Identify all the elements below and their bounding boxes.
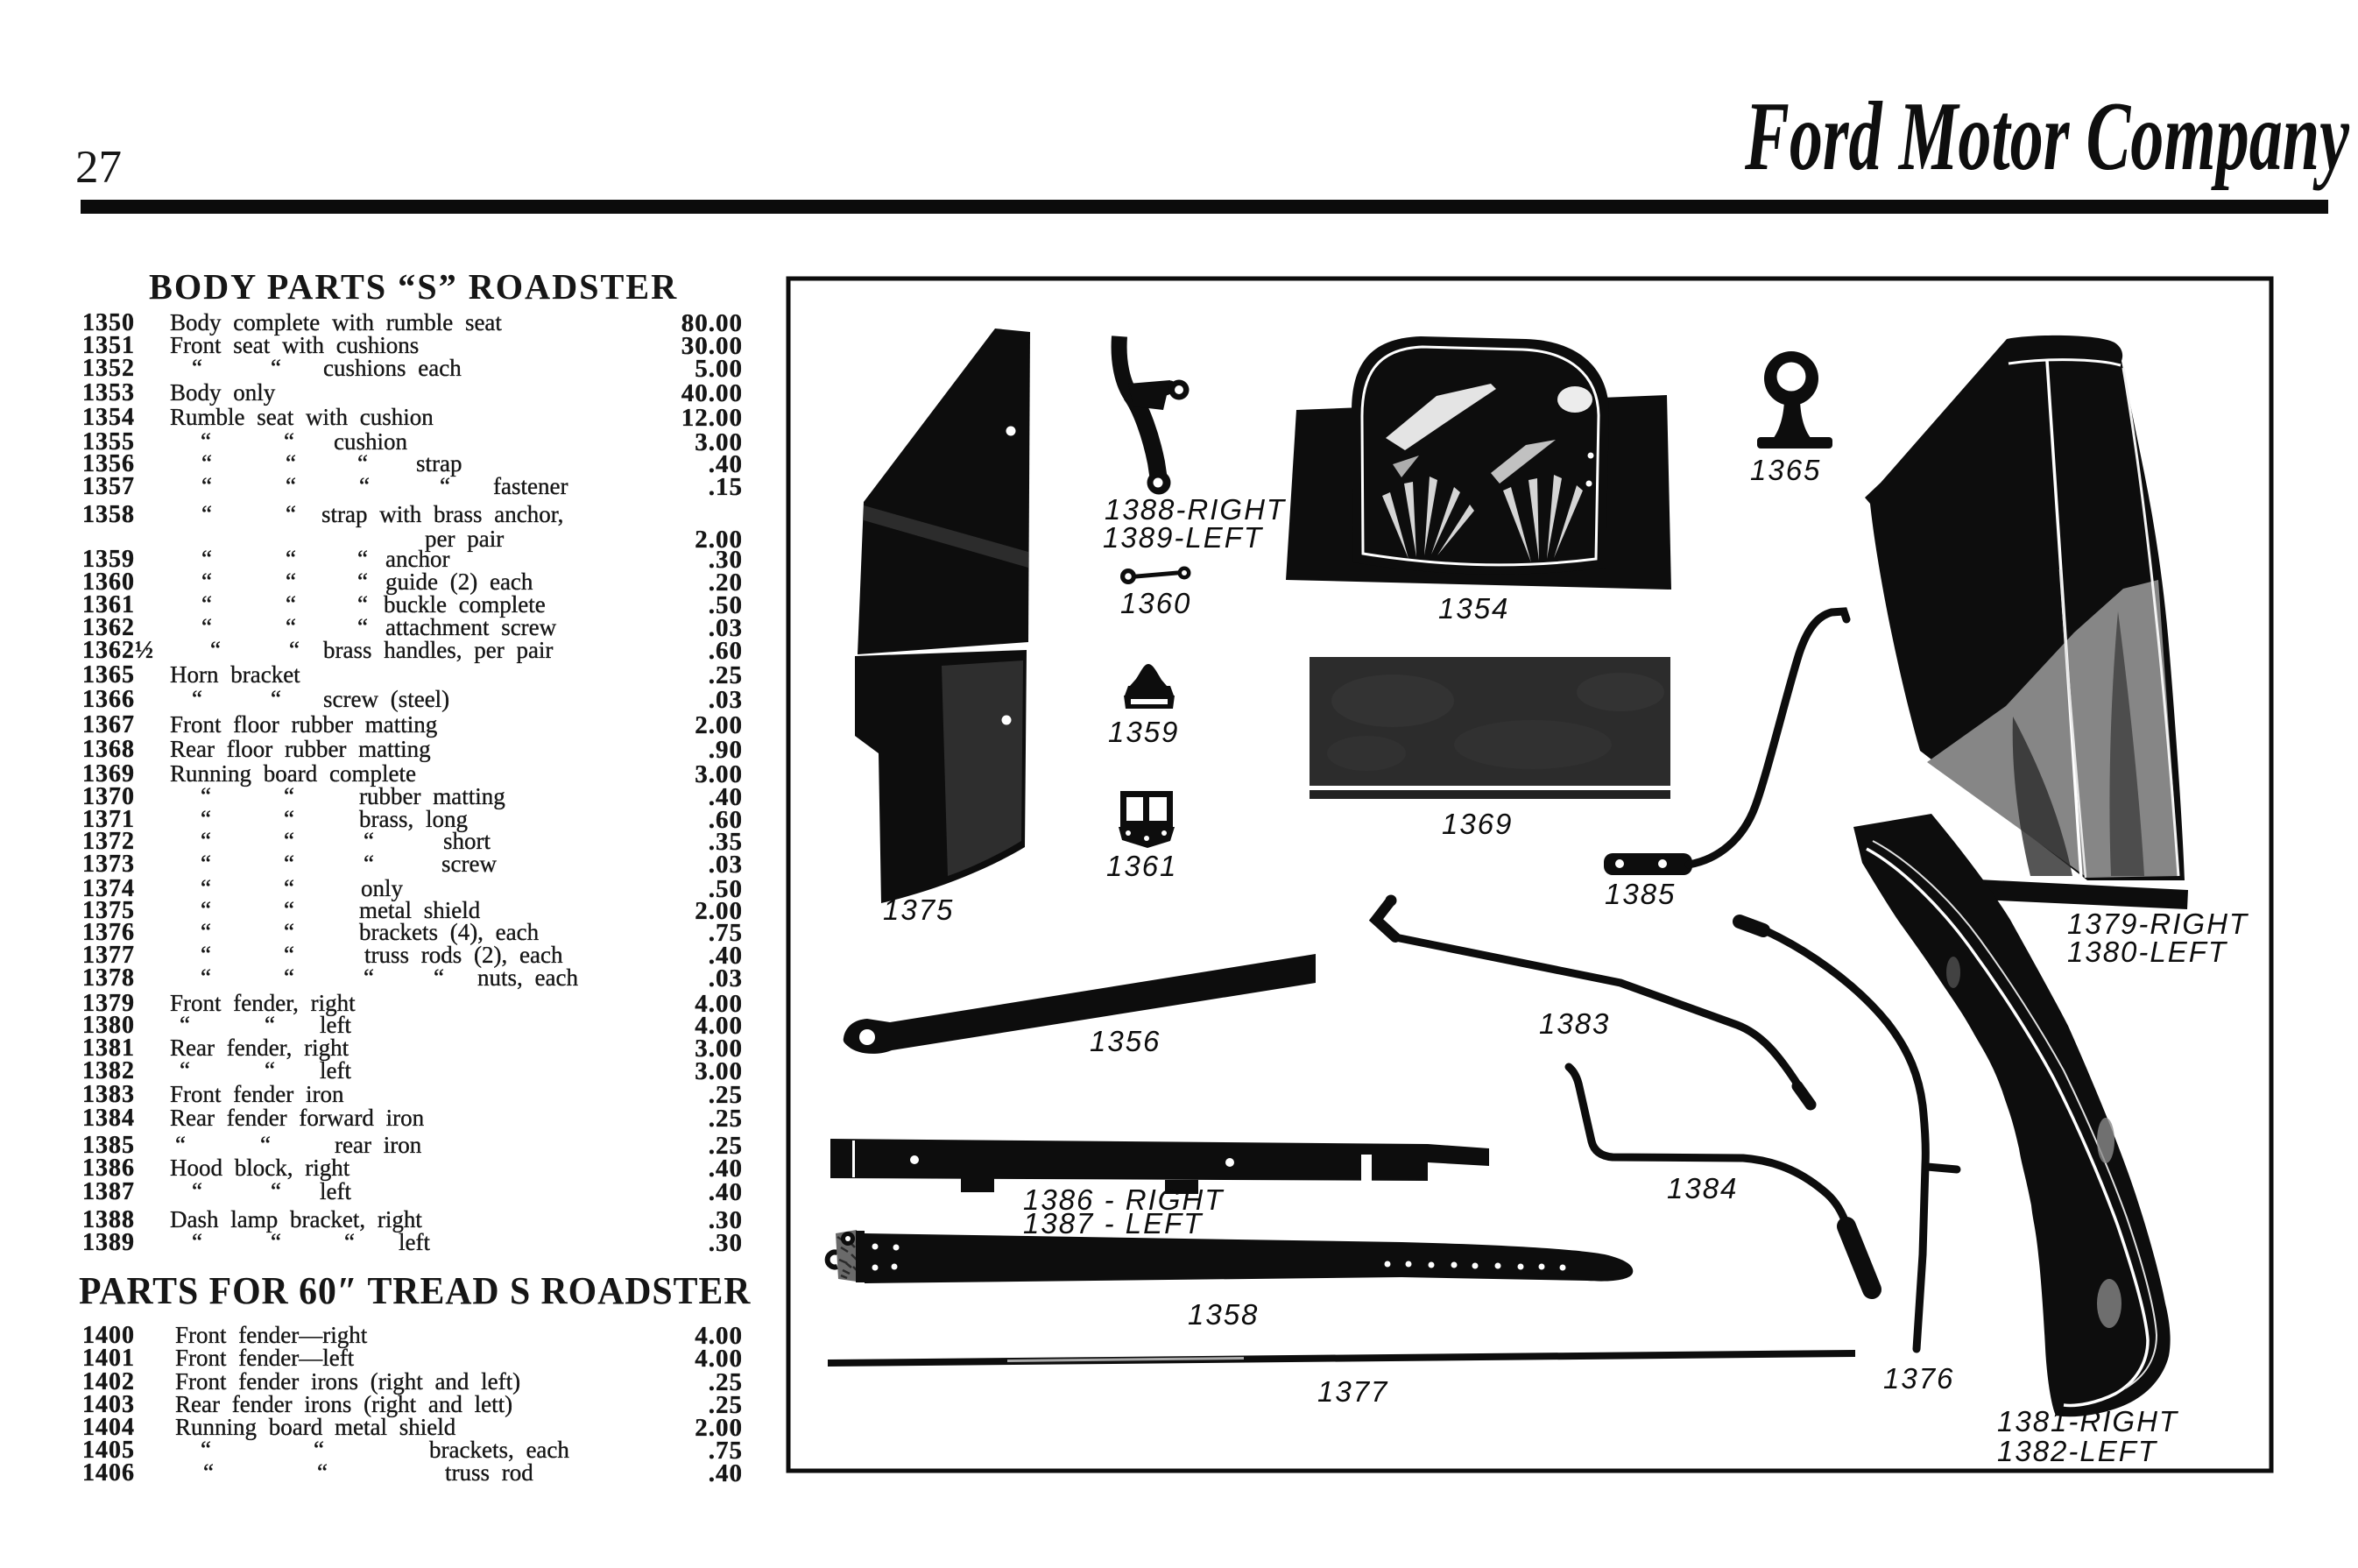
svg-text:1376: 1376 — [1883, 1362, 1954, 1395]
svg-text:1375: 1375 — [883, 893, 954, 926]
svg-text:1360: 1360 — [1120, 587, 1191, 619]
svg-text:1377: 1377 — [1317, 1375, 1388, 1408]
svg-text:1354: 1354 — [1438, 592, 1509, 625]
svg-text:1380-LEFT: 1380-LEFT — [2067, 936, 2228, 968]
svg-text:1383: 1383 — [1539, 1007, 1610, 1040]
svg-text:1356: 1356 — [1090, 1025, 1161, 1057]
svg-text:1369: 1369 — [1442, 808, 1513, 840]
svg-text:1384: 1384 — [1667, 1172, 1738, 1204]
svg-text:1381-RIGHT: 1381-RIGHT — [1997, 1405, 2179, 1437]
svg-text:Ford Motor Company: Ford Motor Company — [1744, 82, 2350, 191]
svg-text:1358: 1358 — [1188, 1298, 1259, 1331]
svg-text:1382-LEFT: 1382-LEFT — [1997, 1435, 2158, 1467]
svg-text:1361: 1361 — [1106, 850, 1177, 882]
svg-text:1385: 1385 — [1605, 878, 1676, 910]
svg-text:1387 - LEFT: 1387 - LEFT — [1023, 1207, 1204, 1240]
svg-text:1389-LEFT: 1389-LEFT — [1103, 521, 1264, 554]
svg-text:1359: 1359 — [1108, 716, 1179, 748]
svg-text:1365: 1365 — [1750, 454, 1821, 486]
